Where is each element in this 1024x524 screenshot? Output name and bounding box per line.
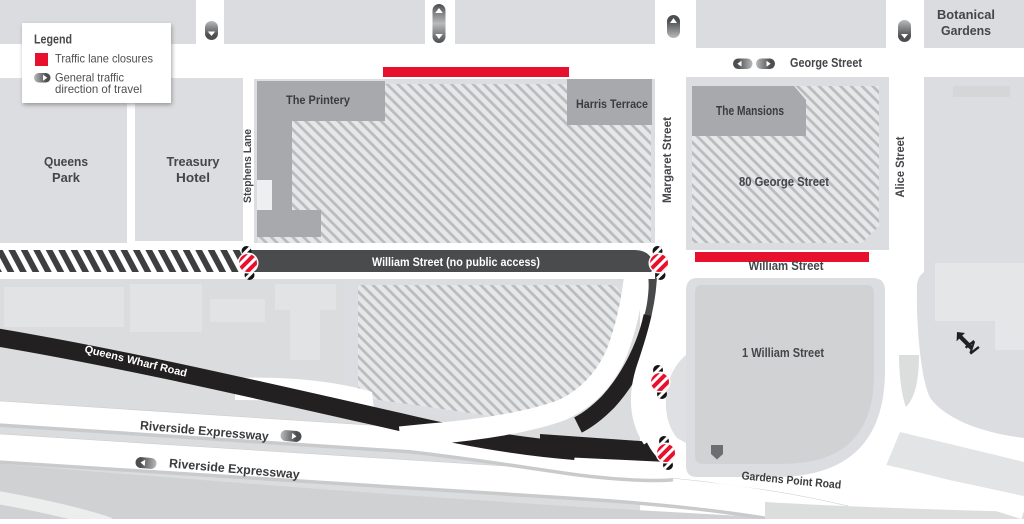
- svg-text:Hotel: Hotel: [176, 170, 210, 185]
- svg-text:Traffic lane closures: Traffic lane closures: [55, 52, 153, 66]
- svg-text:Botanical: Botanical: [937, 7, 995, 22]
- svg-text:Stephens Lane: Stephens Lane: [242, 129, 254, 203]
- svg-text:Margaret Street: Margaret Street: [660, 117, 674, 203]
- svg-text:Queens: Queens: [44, 154, 88, 169]
- svg-text:The Mansions: The Mansions: [716, 104, 784, 118]
- svg-text:Harris Terrace: Harris Terrace: [576, 97, 648, 111]
- svg-text:Gardens: Gardens: [941, 23, 991, 38]
- svg-text:Legend: Legend: [34, 33, 72, 47]
- svg-text:Alice Street: Alice Street: [893, 136, 907, 197]
- svg-text:William Street: William Street: [749, 259, 825, 273]
- svg-text:Treasury: Treasury: [167, 154, 221, 169]
- svg-text:George Street: George Street: [790, 56, 863, 70]
- svg-text:direction of travel: direction of travel: [55, 82, 142, 96]
- svg-text:William Street (no public acce: William Street (no public access): [372, 255, 540, 269]
- svg-text:1 William Street: 1 William Street: [742, 346, 825, 360]
- svg-text:80 George Street: 80 George Street: [739, 175, 830, 189]
- svg-text:Park: Park: [52, 170, 81, 185]
- svg-text:The Printery: The Printery: [286, 93, 350, 107]
